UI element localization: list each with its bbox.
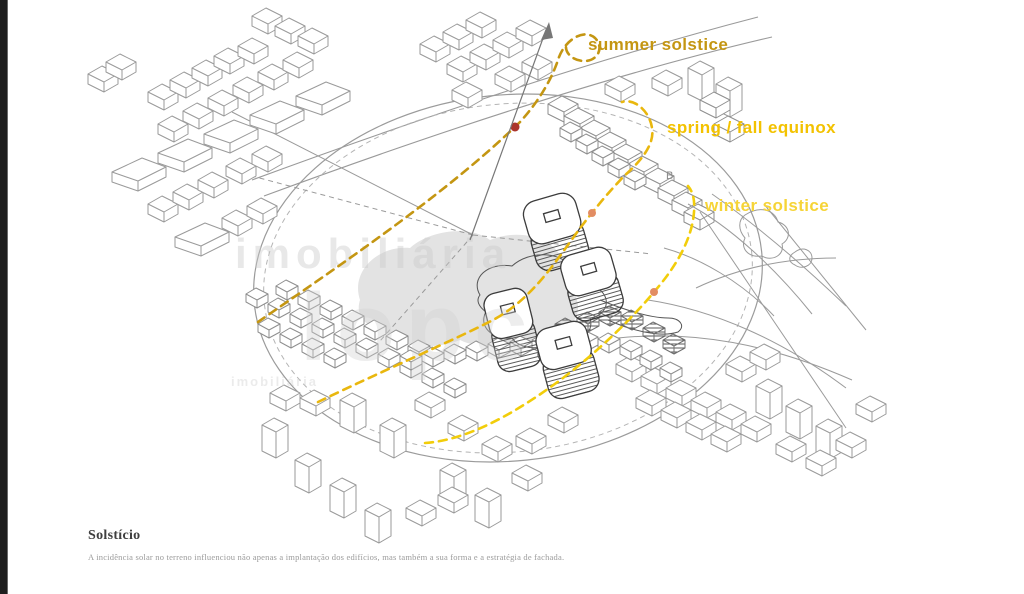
- watermark-line-3: imobiliária: [231, 374, 318, 389]
- tower: [533, 318, 602, 401]
- solar-study-figure: imobiliária lopc imobiliária summer sols…: [0, 0, 1024, 594]
- axonometric-diagram: imobiliária lopc imobiliária summer sols…: [0, 0, 1024, 594]
- label-marker-b: B: [666, 170, 673, 182]
- watermark-line-2: lopc: [300, 274, 537, 381]
- label-winter-solstice: winter solstice: [704, 196, 829, 215]
- label-summer-solstice: summer solstice: [588, 35, 728, 54]
- city-fabric-top-left: [88, 8, 350, 256]
- watermark-line-1: imobiliária: [235, 230, 511, 277]
- sun-ray-marker-orange: [650, 288, 658, 296]
- caption-body: A incidência solar no terreno influencio…: [88, 552, 948, 562]
- caption-title: Solstício: [88, 528, 948, 544]
- figure-caption: Solstício A incidência solar no terreno …: [88, 528, 948, 562]
- label-spring-fall-equinox: spring / fall equinox: [667, 118, 836, 137]
- city-fabric-bottom-scatter: [262, 385, 578, 543]
- sun-ray-marker-orange: [588, 209, 596, 217]
